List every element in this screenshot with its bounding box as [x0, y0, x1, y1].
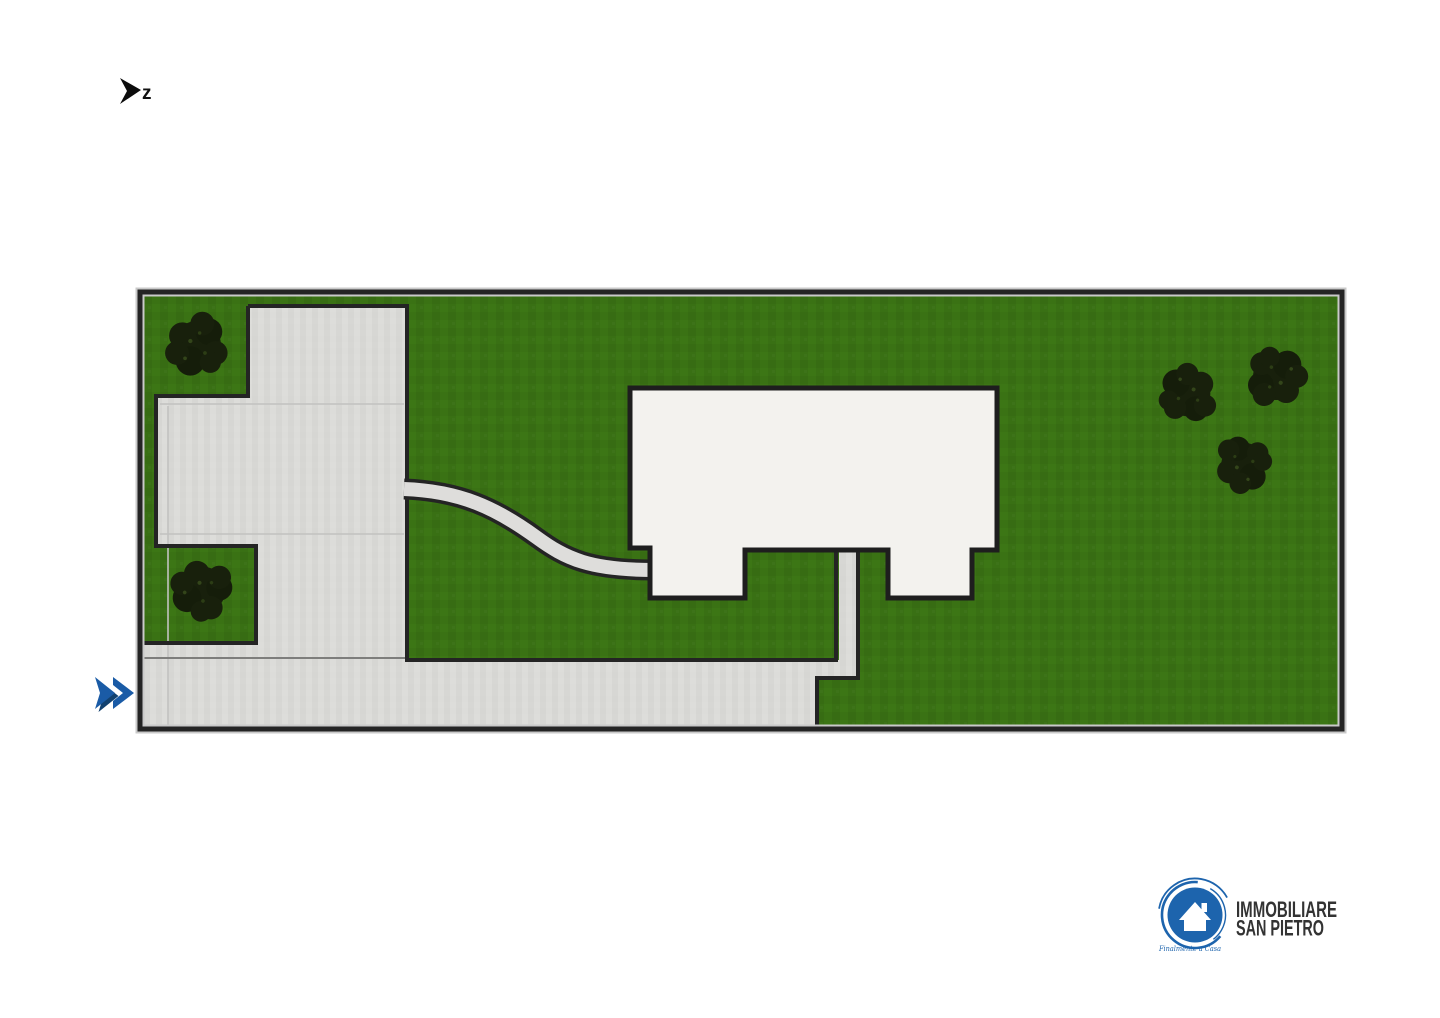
- pan-left-control[interactable]: [95, 677, 134, 712]
- logo-tagline: Finalmente a Casa: [1158, 944, 1221, 953]
- double-chevron-icon-2[interactable]: [113, 677, 134, 709]
- logo-line2: SAN PIETRO: [1236, 916, 1324, 941]
- agency-logo: Finalmente a Casa IMMOBILIARE SAN PIETRO: [1149, 869, 1337, 962]
- site-plan-canvas: z Finalmente a Casa IMMOBILIARE SAN PIET…: [0, 0, 1440, 1018]
- site-plan: [138, 292, 1342, 731]
- north-label: z: [142, 83, 152, 104]
- walkway-paving: [839, 552, 856, 670]
- north-indicator: z: [120, 78, 152, 104]
- north-arrow-icon: [120, 78, 141, 104]
- sidewalk-strip-paving: [138, 660, 858, 731]
